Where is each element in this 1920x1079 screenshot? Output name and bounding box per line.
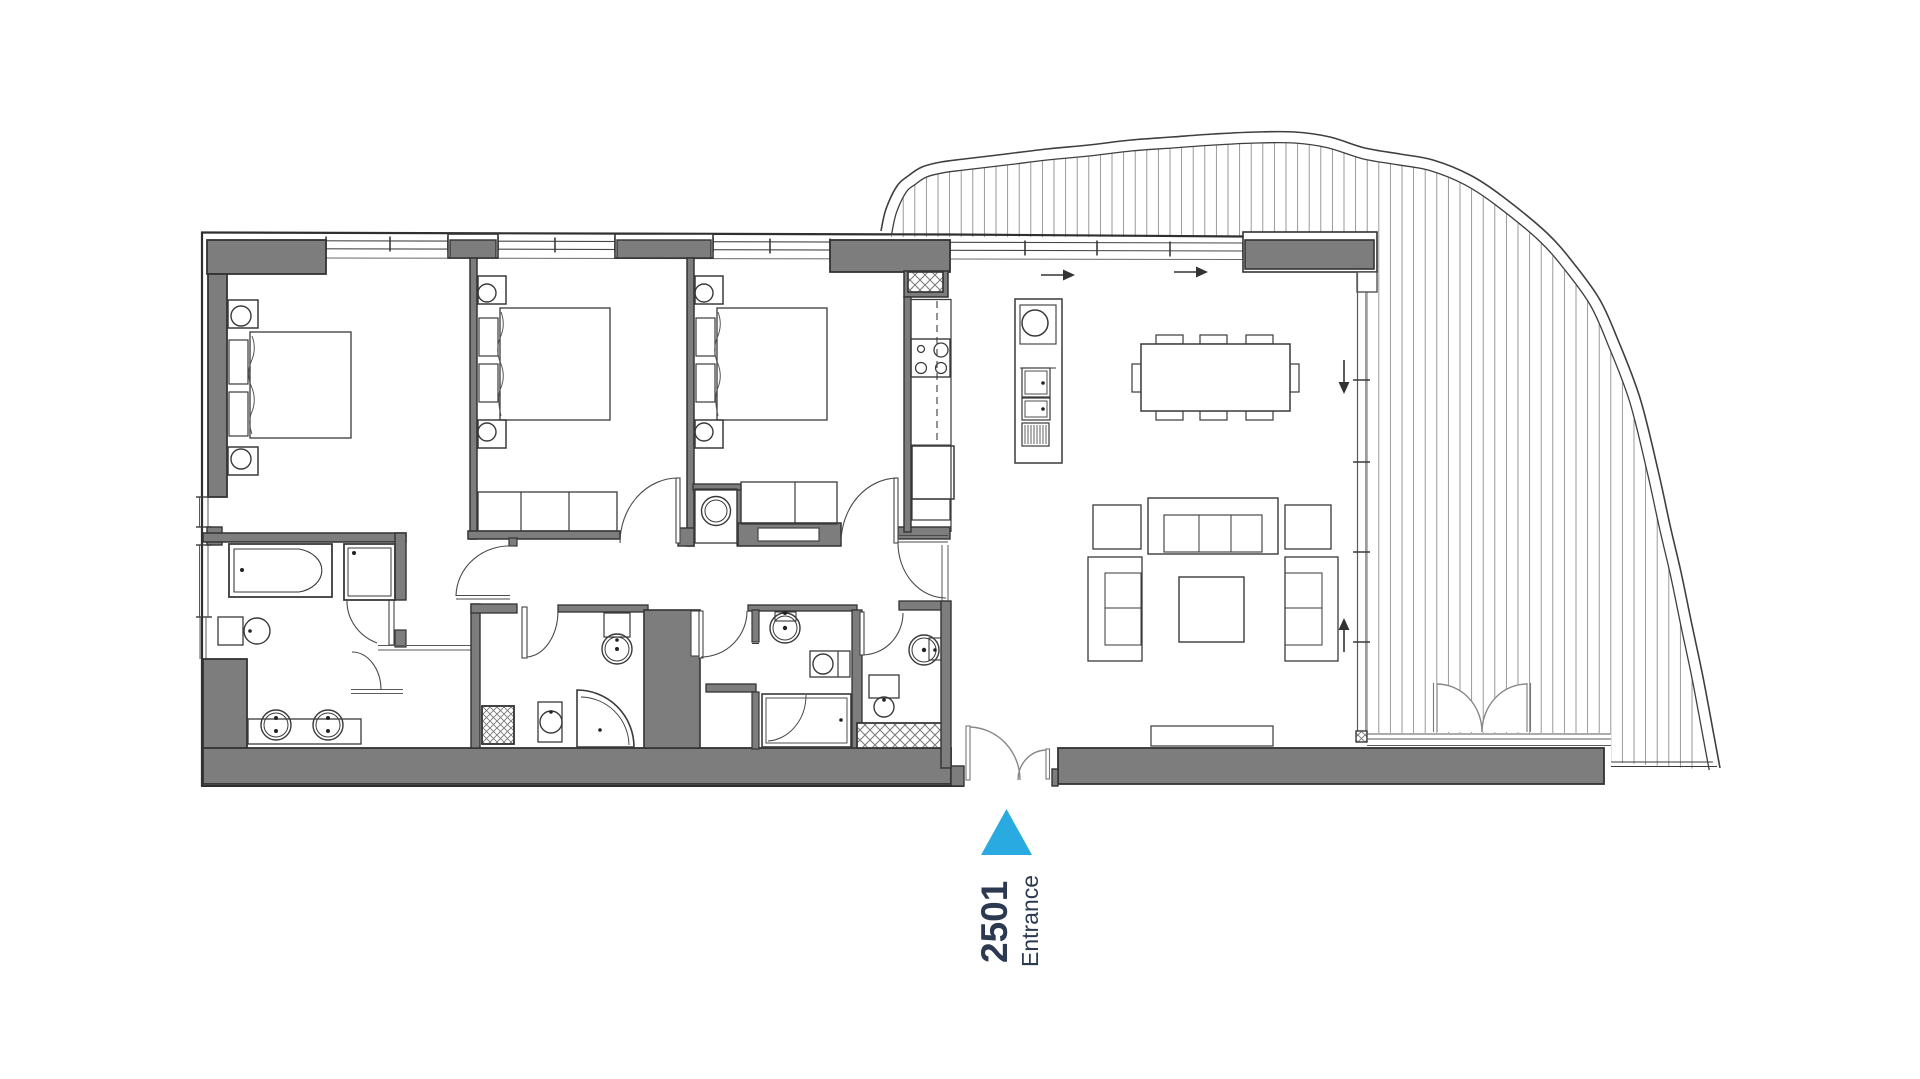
svg-text:Entrance: Entrance <box>1017 875 1043 967</box>
svg-text:2501: 2501 <box>974 881 1015 963</box>
